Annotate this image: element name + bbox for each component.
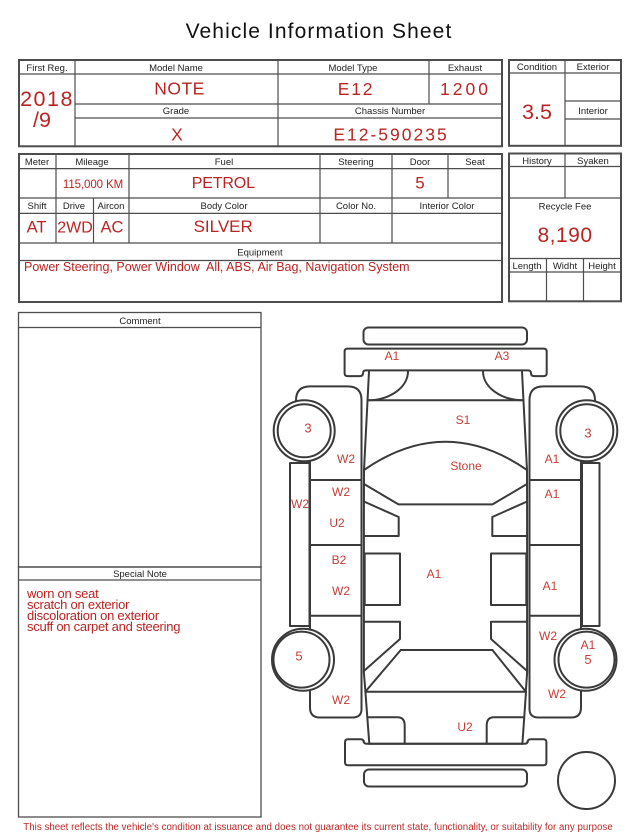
svg-text:E12-590235: E12-590235 (333, 125, 448, 145)
svg-text:1200: 1200 (440, 79, 491, 99)
svg-text:Height: Height (588, 261, 616, 272)
svg-text:W2: W2 (548, 687, 566, 701)
svg-text:W2: W2 (291, 497, 309, 511)
svg-text:W2: W2 (539, 629, 557, 643)
svg-text:S1: S1 (456, 413, 471, 427)
svg-text:A1: A1 (581, 638, 596, 652)
svg-text:Special Note: Special Note (113, 569, 167, 580)
svg-text:3: 3 (304, 421, 311, 436)
svg-text:3: 3 (584, 426, 591, 441)
svg-text:Comment: Comment (119, 316, 161, 327)
svg-text:A1: A1 (427, 567, 442, 581)
svg-text:Aircon: Aircon (98, 201, 125, 212)
svg-text:A1: A1 (385, 349, 400, 363)
svg-text:A3: A3 (495, 349, 510, 363)
svg-text:Body Color: Body Color (201, 201, 248, 212)
svg-text:NOTE: NOTE (154, 79, 205, 99)
svg-text:U2: U2 (329, 516, 345, 530)
svg-text:Steering: Steering (338, 157, 373, 168)
svg-text:Syaken: Syaken (577, 156, 609, 167)
svg-text:Shift: Shift (27, 201, 46, 212)
svg-text:Fuel: Fuel (215, 157, 233, 168)
svg-text:2WD: 2WD (57, 220, 93, 237)
svg-text:Recycle Fee: Recycle Fee (539, 202, 592, 213)
svg-text:Color No.: Color No. (336, 201, 376, 212)
svg-text:115,000 KM: 115,000 KM (63, 179, 123, 191)
svg-text:W2: W2 (332, 693, 350, 707)
svg-text:Interior: Interior (578, 106, 608, 117)
svg-text:Condition: Condition (517, 62, 557, 73)
svg-text:A1: A1 (545, 487, 560, 501)
svg-text:8,190: 8,190 (537, 224, 592, 247)
svg-text:Model Name: Model Name (149, 63, 203, 74)
svg-text:U2: U2 (457, 720, 473, 734)
svg-text:Widht: Widht (553, 261, 578, 272)
svg-text:W2: W2 (337, 452, 355, 466)
svg-text:E12: E12 (338, 79, 375, 99)
svg-text:W2: W2 (332, 584, 350, 598)
svg-text:Equipment: Equipment (237, 248, 283, 259)
svg-text:X: X (171, 125, 183, 145)
svg-text:History: History (522, 156, 552, 167)
svg-text:First Reg.: First Reg. (26, 63, 67, 74)
svg-text:Vehicle Information Sheet: Vehicle Information Sheet (186, 20, 453, 43)
svg-text:W2: W2 (332, 485, 350, 499)
svg-text:Model Type: Model Type (329, 63, 378, 74)
svg-text:Seat: Seat (465, 157, 485, 168)
svg-text:Drive: Drive (63, 201, 85, 212)
svg-text:3.5: 3.5 (522, 100, 552, 124)
svg-text:5: 5 (415, 174, 424, 193)
svg-text:SILVER: SILVER (194, 217, 253, 236)
svg-text:AT: AT (27, 219, 47, 237)
svg-text:/9: /9 (33, 108, 51, 132)
svg-text:Chassis Number: Chassis Number (355, 106, 425, 117)
svg-text:A1: A1 (545, 452, 560, 466)
svg-text:PETROL: PETROL (192, 175, 255, 192)
svg-text:Meter: Meter (25, 157, 49, 168)
svg-text:Stone: Stone (450, 459, 482, 473)
svg-text:B2: B2 (332, 553, 347, 567)
svg-text:AC: AC (101, 219, 124, 237)
svg-text:This sheet reflects the vehicl: This sheet reflects the vehicle's condit… (23, 822, 613, 833)
svg-text:5: 5 (584, 652, 591, 667)
svg-text:Power Steering, Power Window: Power Steering, Power Window All, ABS, A… (24, 260, 410, 274)
svg-text:scuff on carpet and steering: scuff on carpet and steering (27, 619, 180, 634)
svg-text:Door: Door (410, 157, 431, 168)
svg-text:5: 5 (295, 649, 302, 664)
svg-text:Length: Length (512, 261, 541, 272)
svg-text:Grade: Grade (163, 106, 189, 117)
svg-text:Exhaust: Exhaust (448, 63, 483, 74)
svg-text:Interior Color: Interior Color (420, 201, 475, 212)
svg-text:Mileage: Mileage (75, 157, 108, 168)
svg-text:Exterior: Exterior (577, 62, 610, 73)
svg-text:A1: A1 (543, 579, 558, 593)
